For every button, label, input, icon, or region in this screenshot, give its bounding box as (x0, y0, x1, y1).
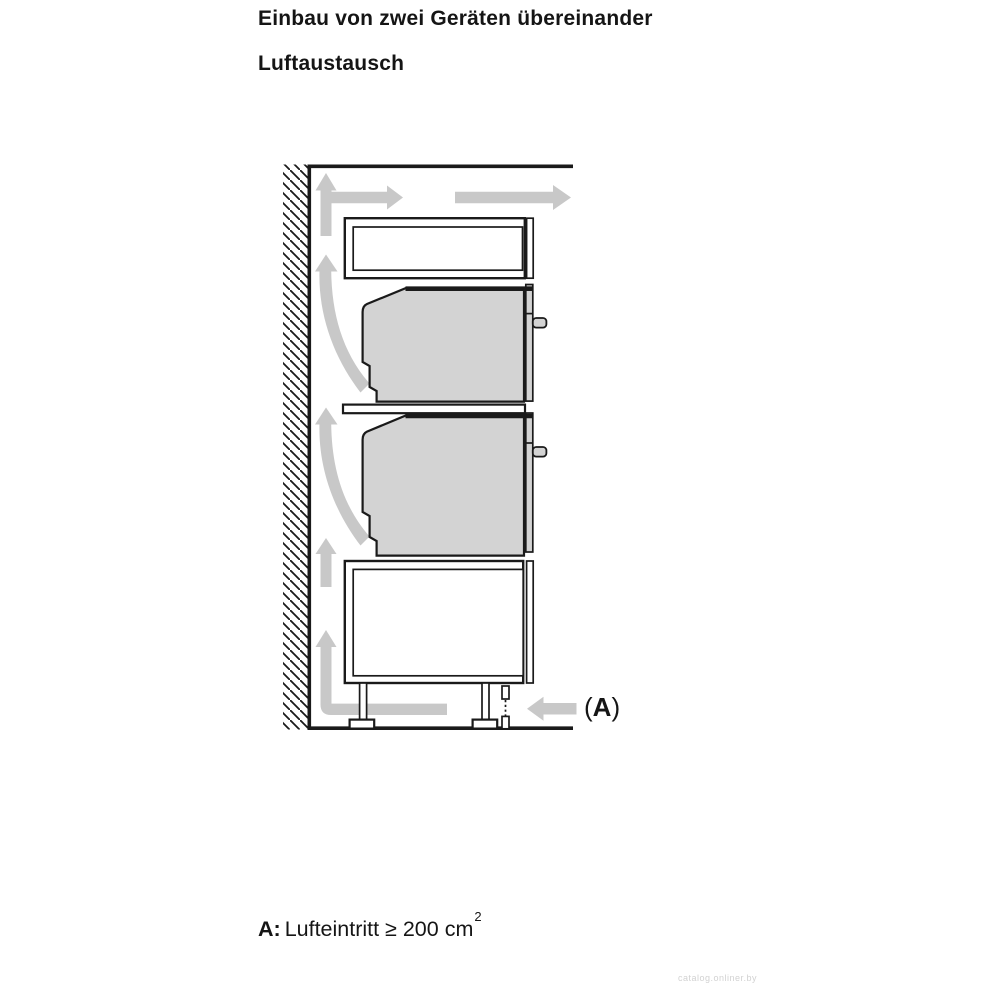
upper-oven-handle (533, 318, 547, 328)
air-inlet-marker-close: ) (611, 692, 620, 722)
manual-page: Einbau von zwei Geräten übereinander Luf… (0, 0, 1000, 1000)
airflow-curved-arrow-lower-icon (315, 408, 370, 546)
legend-text: Lufteintritt ≥ 200 cm (285, 917, 474, 941)
airflow-right-arrow-icon (327, 186, 403, 210)
airflow-up-arrow-top-icon (316, 173, 337, 236)
airflow-inlet-arrow-icon (527, 697, 577, 721)
lower-oven-door (526, 413, 533, 552)
wall-hatching (283, 165, 309, 731)
air-inlet-marker-open: ( (584, 692, 593, 722)
upper-oven-door (526, 285, 533, 402)
base-cabinet (345, 561, 533, 683)
air-inlet-vent (502, 686, 509, 729)
shelf-board (343, 405, 525, 414)
airflow-installation-diagram (0, 0, 1000, 1000)
top-compartment (345, 218, 533, 278)
legend-air-inlet: A:Lufteintritt ≥ 200 cm2 (258, 916, 481, 942)
lower-oven-handle (533, 447, 547, 457)
legend-superscript: 2 (474, 909, 481, 924)
air-inlet-marker-letter: A (593, 692, 612, 722)
legend-key: A: (258, 917, 281, 941)
lower-oven (363, 413, 547, 556)
upper-oven (363, 285, 547, 402)
air-inlet-marker: (A) (584, 692, 620, 723)
airflow-right-arrow-long-icon (455, 185, 571, 210)
watermark: catalog.onliner.by (678, 973, 757, 983)
airflow-up-arrow-middle-icon (316, 538, 337, 587)
